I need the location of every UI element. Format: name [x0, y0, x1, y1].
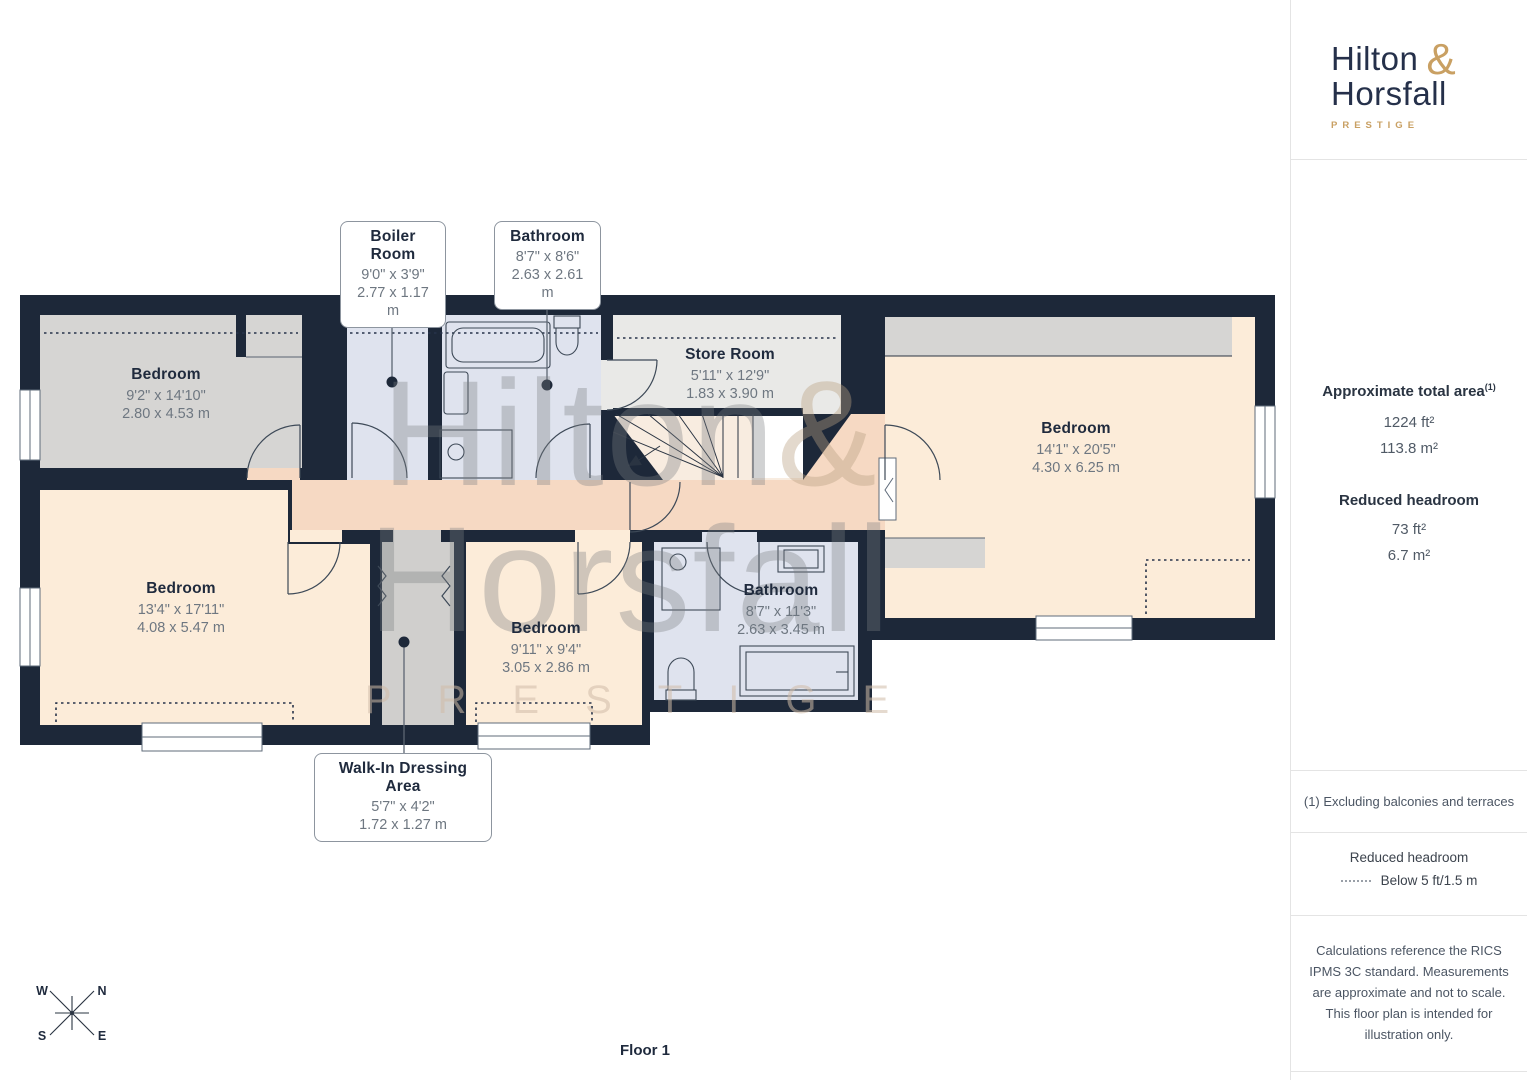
reduced-headroom-title: Reduced headroom	[1291, 492, 1527, 509]
area-summary: Approximate total area(1) 1224 ft² 113.8…	[1291, 160, 1527, 770]
floor-label: Floor 1	[0, 1042, 1290, 1059]
total-area-title-text: Approximate total area	[1322, 383, 1485, 400]
logo-tagline: PRESTIGE	[1331, 120, 1527, 131]
brand-logo: Hilton& Horsfall PRESTIGE	[1291, 0, 1527, 160]
disclaimer-text: Calculations reference the RICS IPMS 3C …	[1291, 915, 1527, 1072]
floorplan-page: W N S E Hilton& Horsfall PRESTIGE Bedroo…	[0, 0, 1527, 1080]
total-area-imperial: 1224 ft²	[1291, 410, 1527, 436]
footnote-marker: (1)	[1485, 382, 1496, 392]
info-sidebar: Hilton& Horsfall PRESTIGE Approximate to…	[1290, 0, 1527, 1080]
area-footnote: (1) Excluding balconies and terraces	[1291, 770, 1527, 832]
callout-boiler-room: Boiler Room 9'0" x 3'9" 2.77 x 1.17 m	[340, 221, 446, 328]
floor-plan-canvas: W N S E	[0, 0, 1290, 1080]
reduced-headroom-legend: Reduced headroom Below 5 ft/1.5 m	[1291, 832, 1527, 915]
callout-name: Boiler Room	[351, 228, 435, 264]
callout-name: Bathroom	[505, 228, 590, 246]
compass-east: E	[98, 1029, 106, 1043]
callout-walk-in-dressing-area: Walk-In Dressing Area 5'7" x 4'2" 1.72 x…	[314, 753, 492, 842]
total-area-metric: 113.8 m²	[1291, 436, 1527, 462]
compass-north: N	[97, 984, 106, 998]
dashed-line-swatch	[1341, 880, 1371, 882]
floor-plan-area: W N S E Hilton& Horsfall PRESTIGE Bedroo…	[0, 0, 1290, 1080]
callout-name: Walk-In Dressing Area	[325, 760, 481, 796]
callout-dim-metric: 1.72 x 1.27 m	[325, 816, 481, 834]
legend-entry: Below 5 ft/1.5 m	[1381, 873, 1478, 888]
total-area-title: Approximate total area(1)	[1291, 382, 1527, 400]
callout-dim-imperial: 8'7" x 8'6"	[505, 248, 590, 266]
callout-dim-imperial: 5'7" x 4'2"	[325, 798, 481, 816]
logo-text: Hilton	[1331, 40, 1418, 77]
callout-bathroom-top: Bathroom 8'7" x 8'6" 2.63 x 2.61 m	[494, 221, 601, 310]
logo-name-line-2: Horsfall	[1331, 77, 1527, 111]
compass-south: S	[38, 1029, 46, 1043]
compass-icon: W N S E	[36, 984, 106, 1043]
legend-row: Below 5 ft/1.5 m	[1291, 873, 1527, 888]
legend-title: Reduced headroom	[1291, 850, 1527, 865]
reduced-headroom-metric: 6.7 m²	[1291, 543, 1527, 569]
reduced-headroom-imperial: 73 ft²	[1291, 517, 1527, 543]
callout-dim-metric: 2.77 x 1.17 m	[351, 284, 435, 320]
logo-name-line-1: Hilton&	[1331, 42, 1527, 77]
callout-dim-imperial: 9'0" x 3'9"	[351, 266, 435, 284]
callout-dim-metric: 2.63 x 2.61 m	[505, 266, 590, 302]
compass-west: W	[36, 984, 48, 998]
